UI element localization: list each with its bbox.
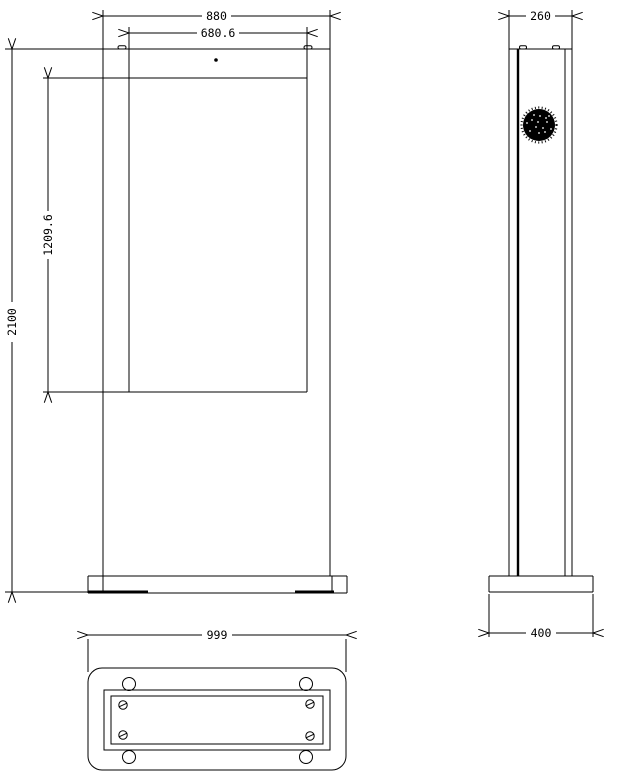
screws <box>119 700 314 740</box>
tab-icon <box>553 46 560 49</box>
technical-drawing: 880 680.6 2100 1209.6 <box>0 0 633 778</box>
camera-icon <box>214 58 218 62</box>
bolt-hole-icon <box>123 751 136 764</box>
dim-side-base-depth: 400 <box>489 594 593 640</box>
screw-icon <box>306 700 314 708</box>
dim-front-overall-width-value: 880 <box>206 9 227 23</box>
dim-front-overall-height: 2100 <box>5 49 103 592</box>
screw-icon <box>306 732 314 740</box>
dim-side-depth: 260 <box>509 9 572 23</box>
tab-icon <box>520 46 527 49</box>
front-base <box>88 576 347 593</box>
bolt-hole-icon <box>300 678 313 691</box>
dim-side-depth-value: 260 <box>530 9 551 23</box>
dim-front-display-height-value: 1209.6 <box>41 214 55 256</box>
dim-bottom-base-width: 999 <box>88 628 346 672</box>
screw-icon <box>119 731 127 739</box>
dim-front-overall-height-value: 2100 <box>5 308 19 336</box>
dim-front-overall-width: 880 <box>103 9 330 23</box>
front-display-panel <box>43 27 307 392</box>
column-footprint-frame <box>104 690 330 750</box>
drawing-canvas: 880 680.6 2100 1209.6 <box>0 0 633 778</box>
bolt-hole-icon <box>300 751 313 764</box>
screw-icon <box>119 701 127 709</box>
bottom-view: 999 <box>88 628 346 770</box>
dim-front-display-width: 680.6 <box>129 26 307 40</box>
dim-front-display-height: 1209.6 <box>41 78 129 392</box>
tab-icon <box>304 46 312 49</box>
side-column-outline <box>509 10 572 576</box>
front-cabinet-outline <box>103 10 330 576</box>
base-plate-outline <box>88 668 346 770</box>
front-view: 880 680.6 2100 1209.6 <box>5 9 347 593</box>
side-view: 260 400 <box>489 9 593 640</box>
dim-front-display-width-value: 680.6 <box>201 26 236 40</box>
fan-grille-icon <box>522 108 557 143</box>
dim-bottom-base-width-value: 999 <box>207 628 228 642</box>
tab-icon <box>118 46 126 49</box>
bolt-hole-icon <box>123 678 136 691</box>
side-base <box>489 576 593 592</box>
dim-side-base-depth-value: 400 <box>531 626 552 640</box>
